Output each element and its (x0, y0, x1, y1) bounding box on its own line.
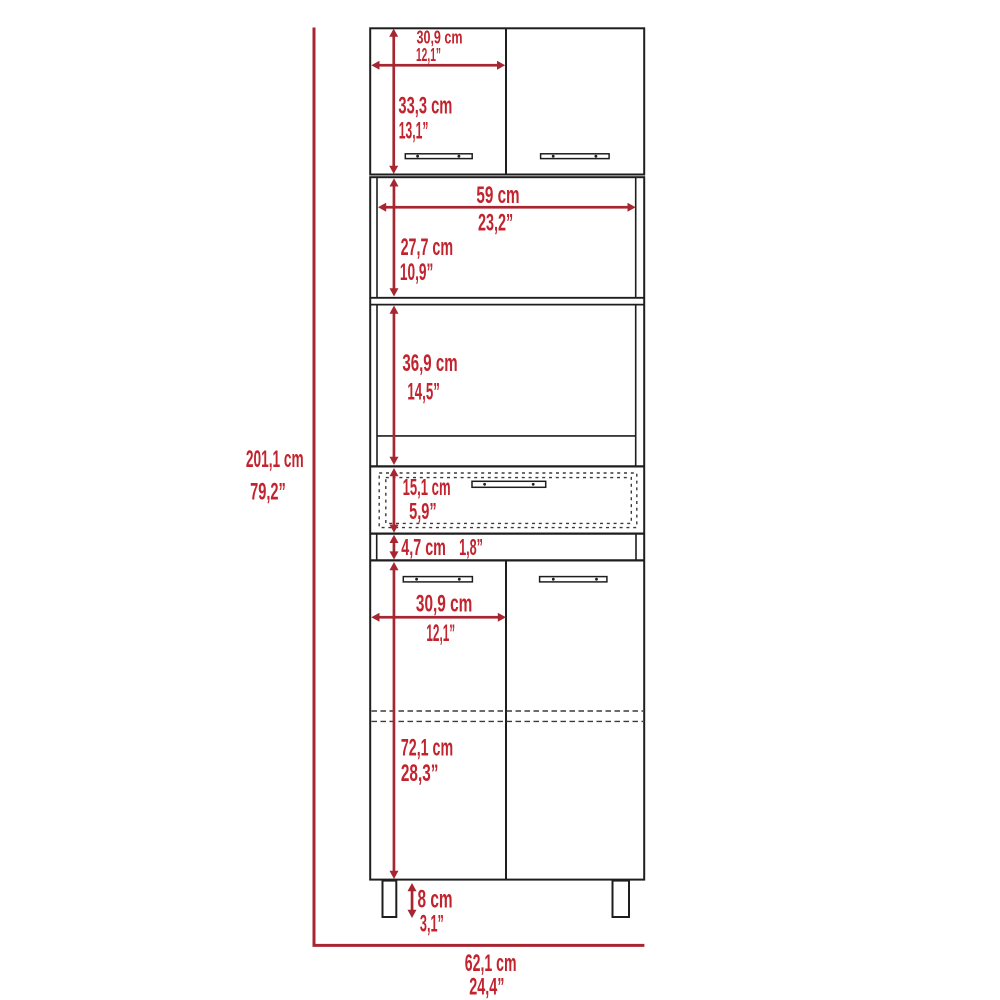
svg-text:13,1”: 13,1” (399, 117, 429, 144)
svg-text:14,5”: 14,5” (407, 379, 440, 406)
svg-text:3,1”: 3,1” (420, 911, 444, 938)
svg-text:1,8”: 1,8” (459, 534, 483, 560)
svg-text:24,4”: 24,4” (469, 974, 504, 1000)
svg-text:8 cm: 8 cm (418, 886, 453, 914)
svg-text:12,1”: 12,1” (426, 620, 455, 647)
svg-text:10,9”: 10,9” (400, 259, 433, 286)
svg-text:23,2”: 23,2” (478, 209, 513, 236)
svg-text:30,9 cm: 30,9 cm (416, 590, 472, 617)
svg-text:4,7 cm: 4,7 cm (401, 534, 446, 560)
svg-text:79,2”: 79,2” (250, 478, 286, 505)
svg-text:72,1 cm: 72,1 cm (401, 735, 453, 762)
svg-text:12,1”: 12,1” (416, 45, 441, 65)
svg-text:15,1 cm: 15,1 cm (403, 474, 451, 500)
svg-text:27,7 cm: 27,7 cm (401, 234, 454, 261)
svg-text:201,1 cm: 201,1 cm (246, 446, 304, 473)
svg-text:5,9”: 5,9” (409, 498, 437, 524)
svg-text:36,9 cm: 36,9 cm (402, 350, 457, 377)
svg-text:59 cm: 59 cm (476, 182, 519, 209)
svg-text:33,3 cm: 33,3 cm (398, 92, 452, 119)
svg-text:28,3”: 28,3” (401, 760, 439, 787)
